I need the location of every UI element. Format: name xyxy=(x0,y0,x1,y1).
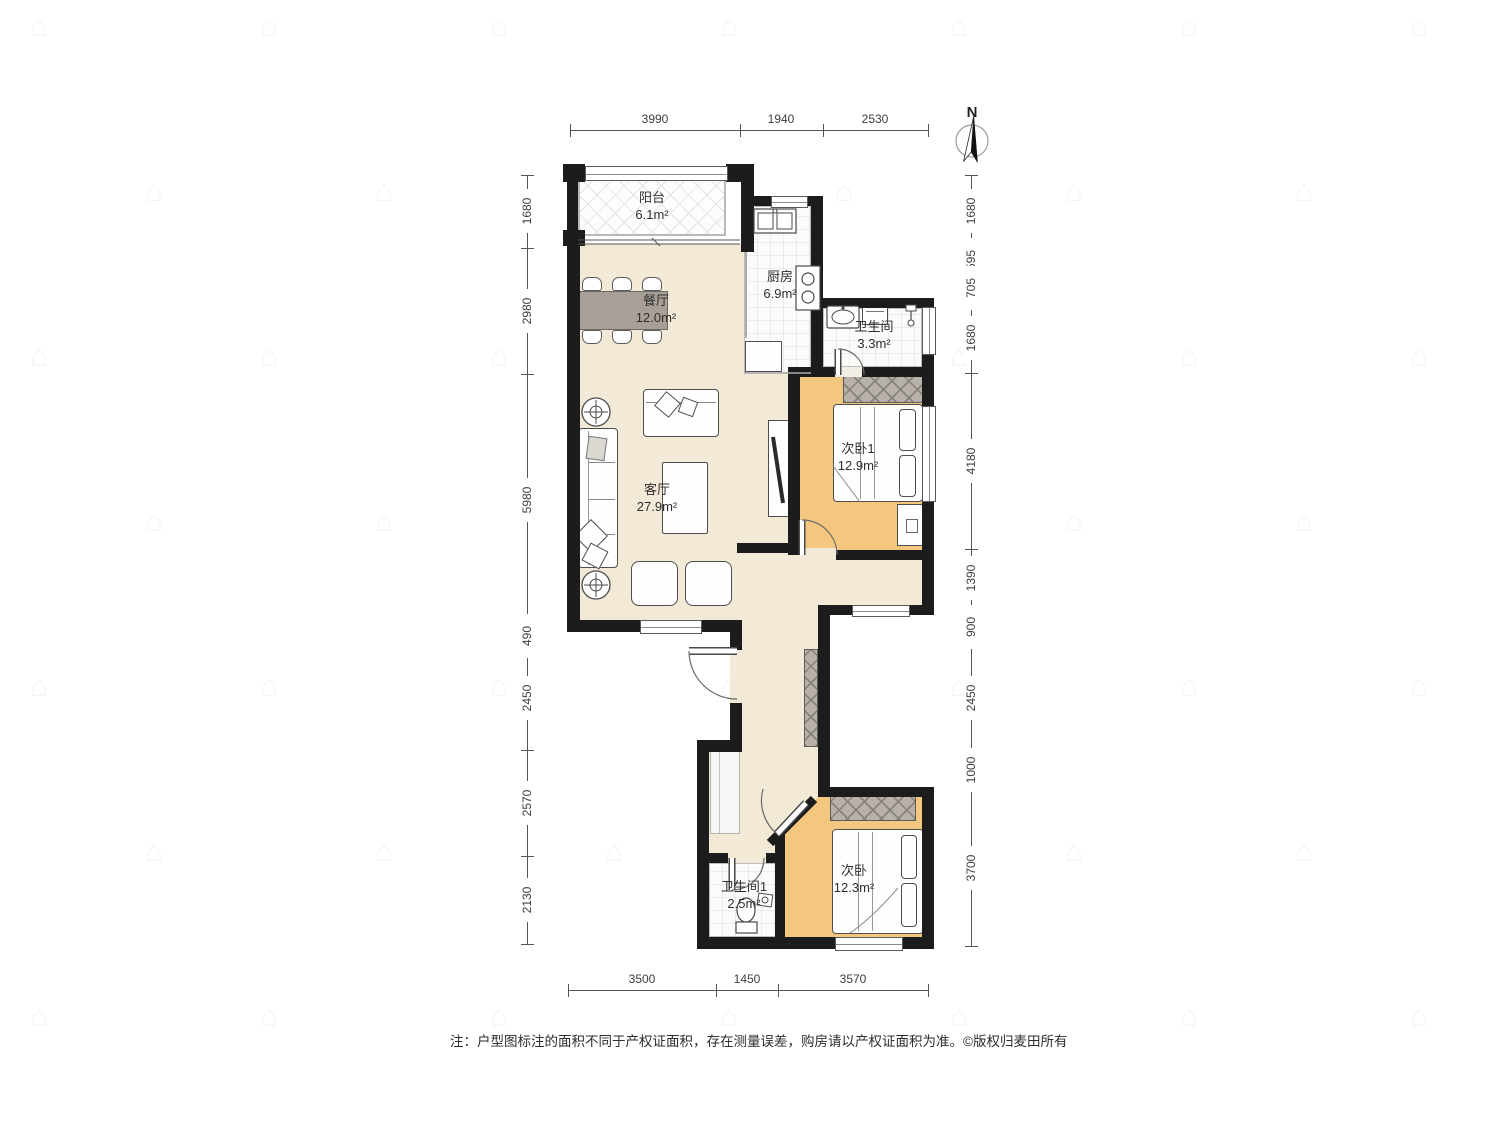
dimension-label: 1680 xyxy=(964,189,978,233)
watermark: ⌂ xyxy=(260,340,278,374)
watermark: ⌂ xyxy=(490,340,508,374)
pouf xyxy=(685,561,732,606)
watermark: ⌂ xyxy=(260,670,278,704)
dimension-label: 900 xyxy=(964,605,978,649)
wall-segment xyxy=(922,787,934,949)
floorplan-page: 阳台 6.1m² 厨房 6.9m² 卫生间 3.3m² 餐厅 12.0m² 客厅… xyxy=(0,0,1500,1125)
watermark: ⌂ xyxy=(145,175,163,209)
dimension-tick xyxy=(778,984,779,997)
nightstand-detail xyxy=(906,519,918,533)
dimension-tick xyxy=(928,124,929,137)
dimension-label: 5980 xyxy=(520,478,534,522)
hall-corridor-junction xyxy=(742,605,818,615)
fridge xyxy=(745,341,782,372)
dimension-tick xyxy=(823,124,824,137)
cabinet-line xyxy=(719,750,720,833)
room-area: 2.5m² xyxy=(689,895,799,912)
wall-segment xyxy=(567,244,580,632)
dimension-label: 1680 xyxy=(964,316,978,360)
watermark: ⌂ xyxy=(1180,10,1198,44)
room-label-balcony: 阳台 6.1m² xyxy=(597,189,707,223)
watermark: ⌂ xyxy=(1065,835,1083,869)
room-label-bedroom1: 次卧1 12.9m² xyxy=(803,440,913,474)
dimension-tick xyxy=(521,750,534,751)
watermark: ⌂ xyxy=(145,835,163,869)
north-label: N xyxy=(957,104,987,121)
sofa-throw-pillow xyxy=(585,436,607,461)
dimension-tick xyxy=(716,984,717,997)
watermark: ⌂ xyxy=(1410,670,1428,704)
dimension-label: 4180 xyxy=(964,439,978,483)
watermark: ⌂ xyxy=(30,10,48,44)
dining-chair xyxy=(612,330,632,344)
entry-threshold xyxy=(730,650,742,703)
dimension-tick xyxy=(570,124,571,137)
watermark: ⌂ xyxy=(30,340,48,374)
dimension-tick xyxy=(568,984,569,997)
watermark: ⌂ xyxy=(375,505,393,539)
wall-segment xyxy=(567,620,640,632)
dimension-tick xyxy=(521,175,534,176)
dimension-label: 490 xyxy=(520,614,534,658)
watermark: ⌂ xyxy=(145,505,163,539)
dining-chair xyxy=(582,330,602,344)
dining-chair xyxy=(642,277,662,291)
dimension-label: 1680 xyxy=(520,189,534,233)
watermark: ⌂ xyxy=(30,1000,48,1034)
watermark: ⌂ xyxy=(1180,340,1198,374)
wall-segment xyxy=(862,367,934,377)
watermark: ⌂ xyxy=(835,175,853,209)
wall-segment xyxy=(908,605,934,615)
wall-segment xyxy=(818,612,830,797)
bedroom1-threshold xyxy=(800,548,836,560)
dimension-tick xyxy=(740,124,741,137)
cabinet-line xyxy=(866,311,884,312)
room-name: 餐厅 xyxy=(601,292,711,309)
balcony-window xyxy=(585,166,728,181)
room-area: 12.3m² xyxy=(799,879,909,896)
dimension-line-bottom xyxy=(568,990,928,991)
dimension-label: 1940 xyxy=(756,112,806,126)
room-area: 12.0m² xyxy=(601,309,711,326)
dimension-label: 2980 xyxy=(520,289,534,333)
dimension-label: 2570 xyxy=(520,781,534,825)
copyright-text: ©版权归麦田所有 xyxy=(963,1030,1067,1050)
watermark: ⌂ xyxy=(950,10,968,44)
footnote-row: 注：户型图标注的面积不同于产权证面积，存在测量误差，购房请以产权证面积为准。 ©… xyxy=(450,1030,1060,1050)
dimension-tick xyxy=(965,549,978,550)
utility-cabinet xyxy=(710,749,740,834)
pouf xyxy=(631,561,678,606)
dimension-label: 2130 xyxy=(520,878,534,922)
living-window xyxy=(640,620,702,634)
room-name: 客厅 xyxy=(602,481,712,498)
watermark: ⌂ xyxy=(490,10,508,44)
dimension-tick xyxy=(521,374,534,375)
kitchen-window xyxy=(771,196,808,208)
watermark: ⌂ xyxy=(260,1000,278,1034)
dimension-label: 2530 xyxy=(850,112,900,126)
room-label-kitchen: 厨房 6.9m² xyxy=(725,268,835,302)
watermark: ⌂ xyxy=(375,175,393,209)
bathroom1-threshold xyxy=(728,853,766,863)
watermark: ⌂ xyxy=(1410,10,1428,44)
hallway-cabinet xyxy=(804,649,818,747)
bedroom1-window xyxy=(922,406,936,502)
wall-segment xyxy=(901,937,934,949)
watermark: ⌂ xyxy=(260,10,278,44)
room-name: 卫生间 xyxy=(819,318,929,335)
dimension-label: 2450 xyxy=(520,676,534,720)
watermark: ⌂ xyxy=(1295,505,1313,539)
room-area: 3.3m² xyxy=(819,335,929,352)
dimension-line-top xyxy=(570,130,928,131)
watermark: ⌂ xyxy=(1180,670,1198,704)
dining-chair xyxy=(582,277,602,291)
dimension-label: 2450 xyxy=(964,676,978,720)
watermark: ⌂ xyxy=(1065,505,1083,539)
watermark: ⌂ xyxy=(490,670,508,704)
watermark: ⌂ xyxy=(30,670,48,704)
room-area: 27.9m² xyxy=(602,498,712,515)
room-name: 次卧 xyxy=(799,862,909,879)
watermark: ⌂ xyxy=(1180,1000,1198,1034)
watermark: ⌂ xyxy=(950,1000,968,1034)
watermark: ⌂ xyxy=(720,10,738,44)
nightstand xyxy=(897,504,924,546)
dining-chair xyxy=(612,277,632,291)
wall-segment xyxy=(741,164,754,252)
dimension-label: 1000 xyxy=(964,748,978,792)
wall-segment xyxy=(697,937,835,949)
watermark: ⌂ xyxy=(1410,1000,1428,1034)
dimension-label: 3570 xyxy=(828,972,878,986)
wall-segment xyxy=(741,196,771,206)
room-name: 次卧1 xyxy=(803,440,913,457)
watermark: ⌂ xyxy=(720,1000,738,1034)
room-label-bath1: 卫生间1 2.5m² xyxy=(689,878,799,912)
watermark: ⌂ xyxy=(375,835,393,869)
room-label-living: 客厅 27.9m² xyxy=(602,481,712,515)
hall-window xyxy=(852,605,910,617)
north-arrow xyxy=(955,115,990,163)
wall-segment xyxy=(737,543,800,553)
bedroom2-window xyxy=(835,937,903,951)
dimension-label: 3700 xyxy=(964,846,978,890)
watermark: ⌂ xyxy=(1065,175,1083,209)
dimension-tick xyxy=(521,944,534,945)
room-area: 12.9m² xyxy=(803,457,913,474)
wall-segment xyxy=(836,550,934,560)
dimension-tick xyxy=(965,946,978,947)
dimension-tick xyxy=(965,175,978,176)
wall-segment xyxy=(730,620,742,652)
sofa-cushion-line xyxy=(589,462,615,463)
wall-segment xyxy=(788,367,800,555)
wall-segment xyxy=(823,298,934,308)
dimension-tick xyxy=(521,856,534,857)
wall-segment xyxy=(697,740,709,949)
room-name: 阳台 xyxy=(597,189,707,206)
watermark: ⌂ xyxy=(1295,175,1313,209)
footnote-text: 注：户型图标注的面积不同于产权证面积，存在测量误差，购房请以产权证面积为准。 xyxy=(450,1030,963,1050)
watermark: ⌂ xyxy=(605,835,623,869)
room-label-bedroom2: 次卧 12.3m² xyxy=(799,862,909,896)
watermark: ⌂ xyxy=(1410,340,1428,374)
dimension-tick xyxy=(521,248,534,249)
wall-segment xyxy=(818,787,934,797)
room-name: 卫生间1 xyxy=(689,878,799,895)
room-area: 6.9m² xyxy=(725,285,835,302)
dimension-label: 1450 xyxy=(722,972,772,986)
bathroom-threshold xyxy=(835,367,862,377)
room-area: 6.1m² xyxy=(597,206,707,223)
room-label-bath: 卫生间 3.3m² xyxy=(819,318,929,352)
watermark: ⌂ xyxy=(1295,835,1313,869)
dimension-label: 3500 xyxy=(617,972,667,986)
wall-segment xyxy=(709,853,730,863)
watermark: ⌂ xyxy=(490,1000,508,1034)
dimension-label: 3990 xyxy=(630,112,680,126)
dimension-tick xyxy=(928,984,929,997)
dimension-label: 1390 xyxy=(964,556,978,600)
room-label-dining: 餐厅 12.0m² xyxy=(601,292,711,326)
dimension-tick xyxy=(965,373,978,374)
room-name: 厨房 xyxy=(725,268,835,285)
dimension-label: 705 xyxy=(964,266,978,310)
dining-chair xyxy=(642,330,662,344)
wardrobe xyxy=(843,373,924,403)
